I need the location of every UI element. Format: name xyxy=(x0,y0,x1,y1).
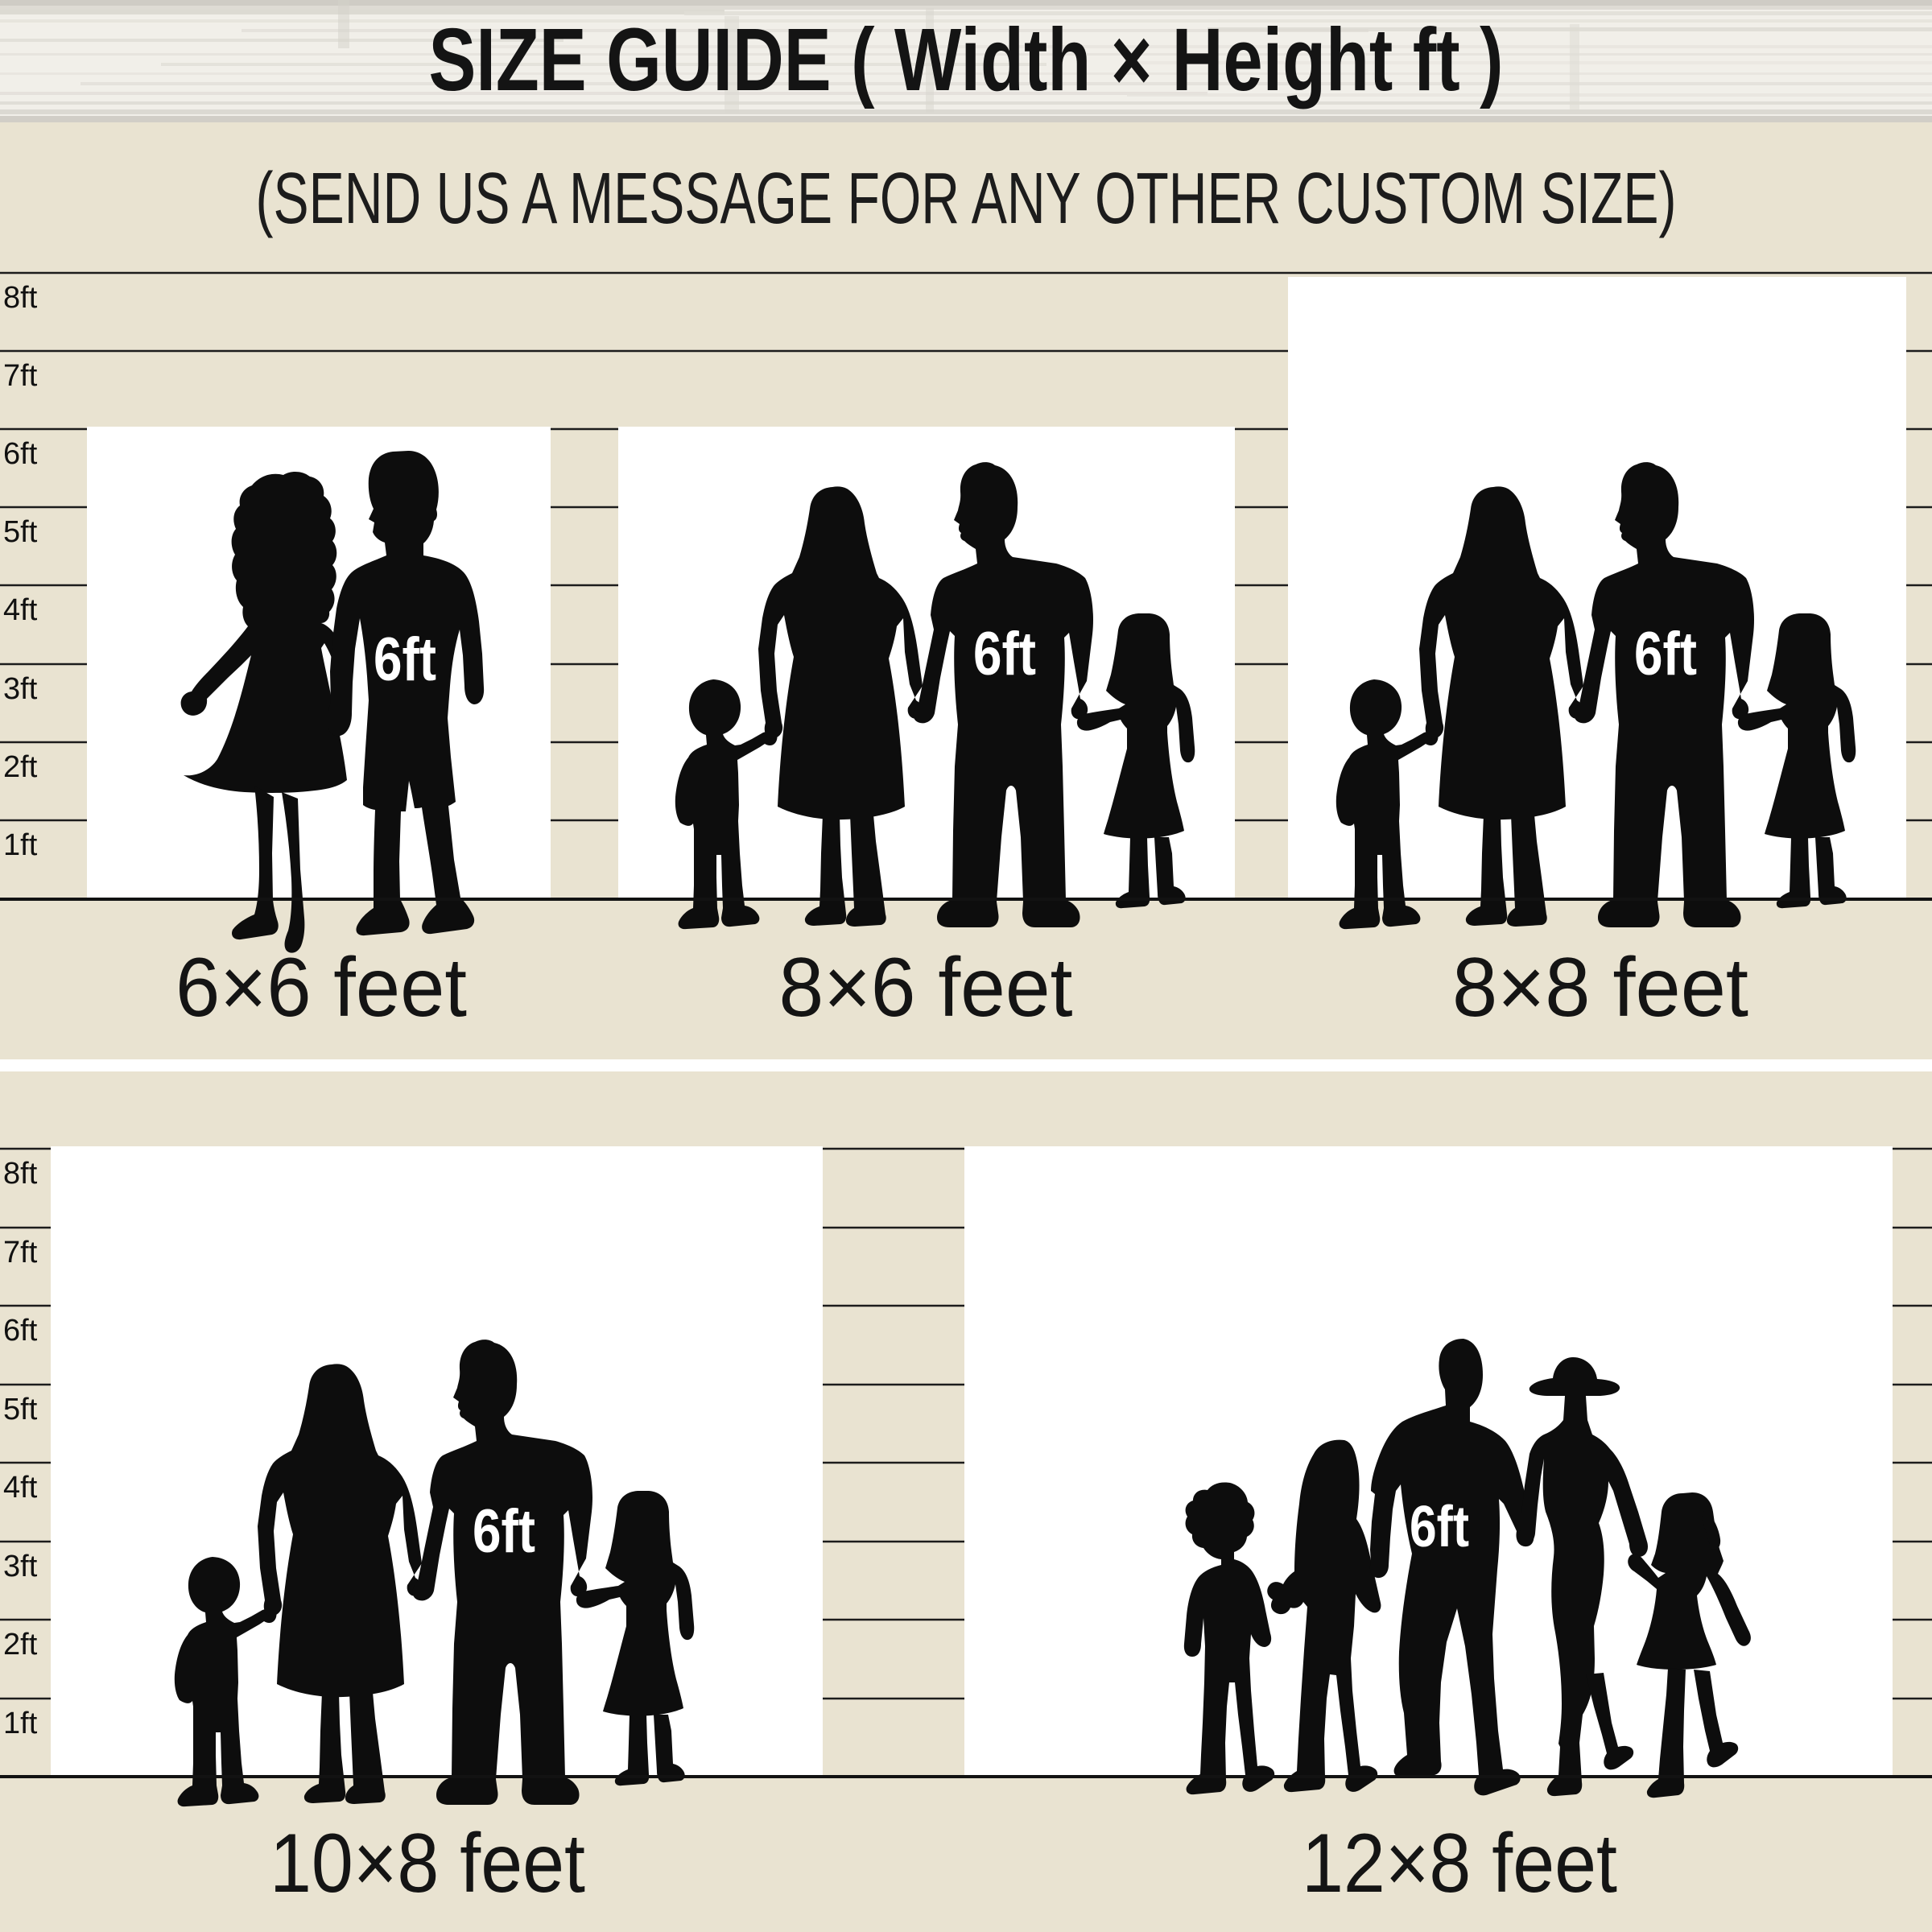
svg-text:1ft: 1ft xyxy=(3,1707,38,1740)
svg-text:6ft: 6ft xyxy=(374,625,436,694)
svg-text:SIZE GUIDE ( Width × Height ft: SIZE GUIDE ( Width × Height ft ) xyxy=(429,10,1504,109)
svg-text:6×6 feet: 6×6 feet xyxy=(175,941,467,1034)
svg-text:6ft: 6ft xyxy=(3,437,38,471)
svg-text:3ft: 3ft xyxy=(3,672,38,706)
svg-text:12×8 feet: 12×8 feet xyxy=(1302,1817,1617,1910)
svg-text:3ft: 3ft xyxy=(3,1550,38,1583)
svg-text:5ft: 5ft xyxy=(3,515,38,549)
svg-text:2ft: 2ft xyxy=(3,1628,38,1662)
svg-text:8×6 feet: 8×6 feet xyxy=(779,941,1073,1034)
svg-text:4ft: 4ft xyxy=(3,1471,38,1505)
svg-text:6ft: 6ft xyxy=(1410,1495,1469,1559)
svg-text:6ft: 6ft xyxy=(973,620,1036,688)
svg-text:(SEND US A MESSAGE FOR ANY OTH: (SEND US A MESSAGE FOR ANY OTHER CUSTOM … xyxy=(256,159,1677,239)
svg-text:8ft: 8ft xyxy=(3,1157,38,1191)
svg-text:5ft: 5ft xyxy=(3,1393,38,1426)
svg-text:4ft: 4ft xyxy=(3,593,38,627)
svg-text:7ft: 7ft xyxy=(3,1236,38,1269)
svg-text:8×8 feet: 8×8 feet xyxy=(1452,941,1748,1034)
svg-text:2ft: 2ft xyxy=(3,750,38,784)
svg-text:1ft: 1ft xyxy=(3,828,38,862)
svg-text:10×8 feet: 10×8 feet xyxy=(270,1817,585,1910)
svg-text:7ft: 7ft xyxy=(3,359,38,393)
svg-text:6ft: 6ft xyxy=(3,1314,38,1348)
svg-text:8ft: 8ft xyxy=(3,281,38,315)
